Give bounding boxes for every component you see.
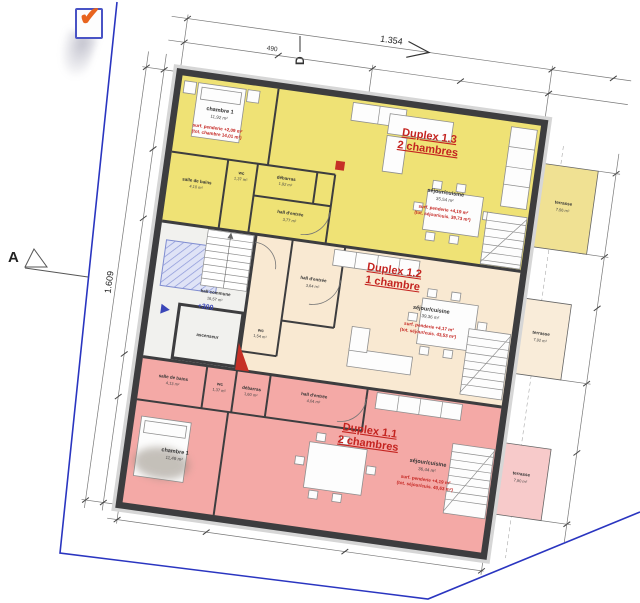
dim-left-total: 1.609 <box>103 270 116 294</box>
check-icon: ✔ <box>79 3 101 29</box>
section-marker-a: A <box>8 249 88 277</box>
duplex11-wc-label: wc <box>216 381 224 387</box>
chimney-block <box>335 161 345 171</box>
floorplan-drawing: A D 1.354 <box>0 0 640 603</box>
floorplan-screenshot: ✔ A D <box>0 0 640 603</box>
dim-top-partial: 490 <box>266 45 278 53</box>
section-a-triangle-icon <box>25 249 47 267</box>
dim-top-total: 1.354 <box>380 34 404 47</box>
section-marker-d: D <box>293 36 307 65</box>
section-a-label: A <box>8 249 19 266</box>
section-d-label: D <box>293 56 307 65</box>
duplex13-wc-label: wc <box>237 170 245 176</box>
duplex12-wc-label: wc <box>257 327 265 333</box>
checkbox-shortcut-icon[interactable]: ✔ <box>75 8 103 39</box>
common-staircase <box>201 229 254 291</box>
section-a-leader <box>25 268 88 277</box>
